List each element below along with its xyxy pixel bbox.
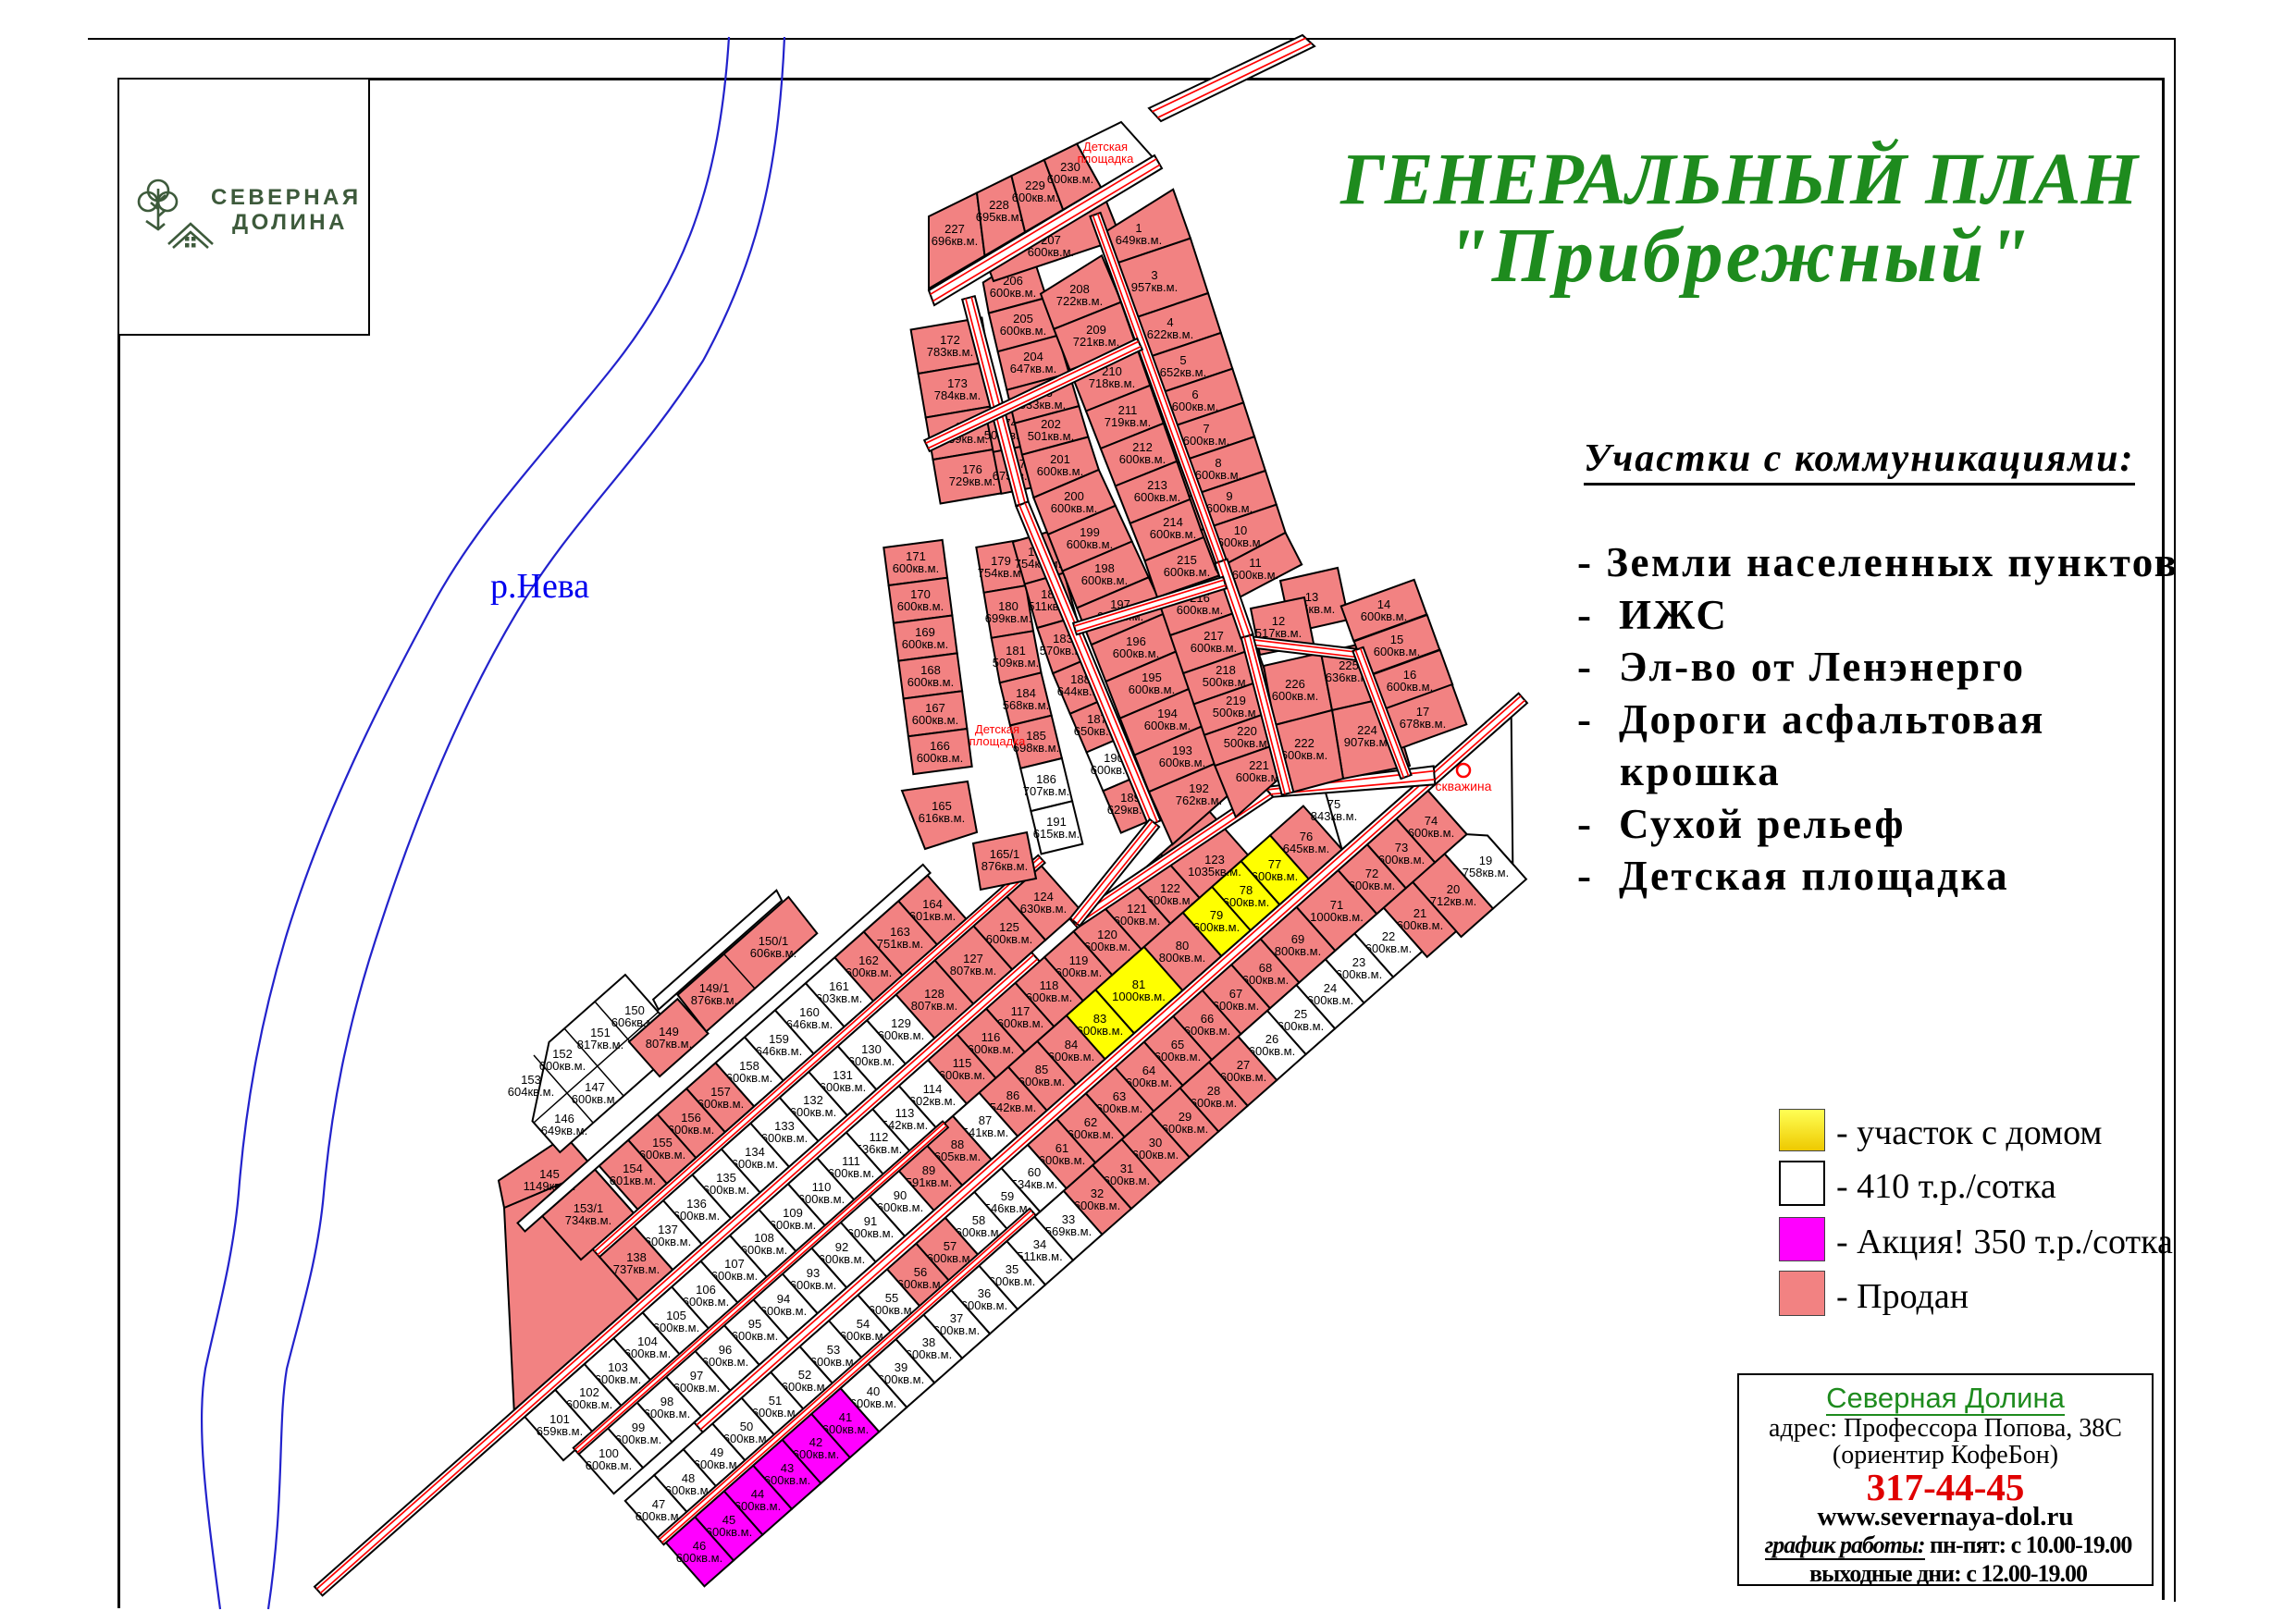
- svg-text:817кв.м.: 817кв.м.: [577, 1038, 623, 1051]
- svg-text:843кв.м.: 843кв.м.: [1311, 809, 1357, 823]
- svg-text:784кв.м.: 784кв.м.: [934, 388, 981, 402]
- svg-text:600кв.м.: 600кв.м.: [1037, 464, 1083, 478]
- svg-text:659кв.м.: 659кв.м.: [537, 1424, 583, 1438]
- svg-text:600кв.м.: 600кв.м.: [1000, 324, 1046, 338]
- svg-text:600кв.м.: 600кв.м.: [1183, 434, 1229, 448]
- svg-text:646кв.м.: 646кв.м.: [786, 1017, 833, 1031]
- svg-text:783кв.м.: 783кв.м.: [927, 345, 973, 359]
- svg-text:646кв.м.: 646кв.м.: [756, 1044, 802, 1058]
- svg-text:645кв.м.: 645кв.м.: [1283, 842, 1329, 855]
- svg-text:600кв.м.: 600кв.м.: [1081, 573, 1128, 587]
- svg-text:695кв.м.: 695кв.м.: [976, 210, 1022, 224]
- svg-text:600кв.м.: 600кв.м.: [986, 932, 1032, 946]
- svg-text:600кв.м.: 600кв.м.: [1028, 245, 1074, 259]
- svg-text:751кв.м.: 751кв.м.: [877, 937, 923, 951]
- svg-text:скважина: скважина: [1436, 779, 1492, 793]
- svg-text:площадка: площадка: [1078, 152, 1134, 166]
- svg-text:600кв.м.: 600кв.м.: [1195, 468, 1241, 482]
- svg-text:600кв.м.: 600кв.м.: [1159, 756, 1205, 769]
- svg-text:800кв.м.: 800кв.м.: [1159, 951, 1205, 965]
- svg-text:800кв.м.: 800кв.м.: [1275, 944, 1321, 958]
- svg-text:762кв.м.: 762кв.м.: [1176, 793, 1222, 807]
- svg-text:649кв.м.: 649кв.м.: [1116, 233, 1162, 247]
- svg-text:876кв.м.: 876кв.м.: [691, 993, 737, 1007]
- svg-text:600кв.м.: 600кв.м.: [1134, 490, 1180, 504]
- svg-text:площадка: площадка: [969, 734, 1026, 748]
- svg-text:707кв.м.: 707кв.м.: [1023, 784, 1069, 798]
- svg-text:600кв.м.: 600кв.м.: [1387, 680, 1433, 694]
- svg-text:600кв.м.: 600кв.м.: [1012, 191, 1058, 204]
- svg-text:600кв.м.: 600кв.м.: [1164, 565, 1210, 579]
- svg-text:807кв.м.: 807кв.м.: [950, 964, 996, 977]
- svg-text:606кв.м.: 606кв.м.: [750, 946, 796, 960]
- svg-text:616кв.м.: 616кв.м.: [919, 811, 965, 825]
- svg-text:907кв.м.: 907кв.м.: [1344, 735, 1390, 749]
- svg-text:721кв.м.: 721кв.м.: [1073, 335, 1119, 349]
- svg-text:600кв.м.: 600кв.м.: [586, 1458, 632, 1472]
- svg-text:600кв.м.: 600кв.м.: [1067, 537, 1113, 551]
- svg-text:1035кв.м.: 1035кв.м.: [1188, 865, 1241, 879]
- svg-text:678кв.м.: 678кв.м.: [1400, 717, 1446, 731]
- svg-text:601кв.м.: 601кв.м.: [610, 1174, 656, 1187]
- svg-text:604кв.м.: 604кв.м.: [508, 1085, 554, 1099]
- svg-text:600кв.м.: 600кв.м.: [1206, 501, 1253, 515]
- svg-text:807кв.м.: 807кв.м.: [646, 1037, 692, 1051]
- svg-text:1000кв.м.: 1000кв.м.: [1112, 990, 1166, 1003]
- svg-text:758кв.м.: 758кв.м.: [1463, 866, 1509, 879]
- svg-text:600кв.м.: 600кв.м.: [572, 1092, 618, 1106]
- svg-text:501кв.м.: 501кв.м.: [1028, 429, 1074, 443]
- svg-text:600кв.м.: 600кв.м.: [990, 286, 1036, 300]
- svg-text:729кв.м.: 729кв.м.: [949, 474, 995, 488]
- svg-text:600кв.м.: 600кв.м.: [539, 1059, 586, 1073]
- svg-text:699кв.м.: 699кв.м.: [985, 611, 1031, 625]
- svg-text:600кв.м.: 600кв.м.: [897, 599, 944, 613]
- svg-text:719кв.м.: 719кв.м.: [1105, 415, 1151, 429]
- svg-text:876кв.м.: 876кв.м.: [981, 859, 1028, 873]
- svg-text:600кв.м.: 600кв.м.: [1047, 172, 1093, 186]
- svg-text:647кв.м.: 647кв.м.: [1010, 362, 1056, 375]
- svg-text:957кв.м.: 957кв.м.: [1131, 280, 1178, 294]
- svg-text:622кв.м.: 622кв.м.: [1147, 327, 1193, 341]
- svg-text:630кв.м.: 630кв.м.: [1020, 902, 1067, 916]
- svg-text:600кв.м.: 600кв.м.: [1119, 452, 1166, 466]
- svg-text:712кв.м.: 712кв.м.: [1430, 894, 1476, 908]
- svg-text:649кв.м.: 649кв.м.: [541, 1124, 587, 1137]
- svg-text:615кв.м.: 615кв.м.: [1033, 827, 1080, 841]
- svg-text:600кв.м.: 600кв.м.: [1150, 527, 1196, 541]
- svg-text:600кв.м.: 600кв.м.: [1232, 568, 1278, 582]
- svg-text:652кв.м.: 652кв.м.: [1160, 365, 1206, 379]
- svg-text:600кв.м.: 600кв.м.: [893, 561, 939, 575]
- svg-text:509кв.м.: 509кв.м.: [993, 656, 1039, 670]
- svg-text:600кв.м.: 600кв.м.: [1177, 603, 1223, 617]
- svg-text:600кв.м.: 600кв.м.: [1113, 646, 1159, 660]
- svg-text:600кв.м.: 600кв.м.: [1051, 501, 1097, 515]
- svg-text:600кв.м.: 600кв.м.: [917, 751, 963, 765]
- svg-text:600кв.м.: 600кв.м.: [902, 637, 948, 651]
- svg-text:1000кв.м.: 1000кв.м.: [1310, 910, 1364, 924]
- svg-text:600кв.м.: 600кв.м.: [1408, 826, 1454, 840]
- svg-text:600кв.м.: 600кв.м.: [676, 1551, 722, 1565]
- svg-text:600кв.м.: 600кв.м.: [1129, 682, 1175, 696]
- svg-text:600кв.м.: 600кв.м.: [907, 675, 954, 689]
- svg-text:696кв.м.: 696кв.м.: [932, 234, 978, 248]
- svg-text:600кв.м.: 600кв.м.: [1172, 400, 1218, 413]
- svg-text:722кв.м.: 722кв.м.: [1056, 294, 1103, 308]
- svg-text:718кв.м.: 718кв.м.: [1089, 376, 1135, 390]
- svg-text:600кв.м.: 600кв.м.: [1374, 645, 1420, 658]
- svg-text:734кв.м.: 734кв.м.: [565, 1213, 611, 1227]
- svg-text:807кв.м.: 807кв.м.: [911, 999, 957, 1013]
- svg-text:568кв.м.: 568кв.м.: [1003, 698, 1049, 712]
- svg-text:600кв.м.: 600кв.м.: [1191, 641, 1237, 655]
- svg-text:600кв.м.: 600кв.м.: [1272, 689, 1318, 703]
- svg-text:600кв.м.: 600кв.м.: [912, 713, 958, 727]
- svg-text:737кв.м.: 737кв.м.: [613, 1262, 660, 1276]
- svg-text:600кв.м.: 600кв.м.: [1361, 609, 1407, 623]
- svg-text:600кв.м.: 600кв.м.: [1144, 719, 1191, 732]
- svg-text:600кв.м.: 600кв.м.: [1281, 748, 1327, 762]
